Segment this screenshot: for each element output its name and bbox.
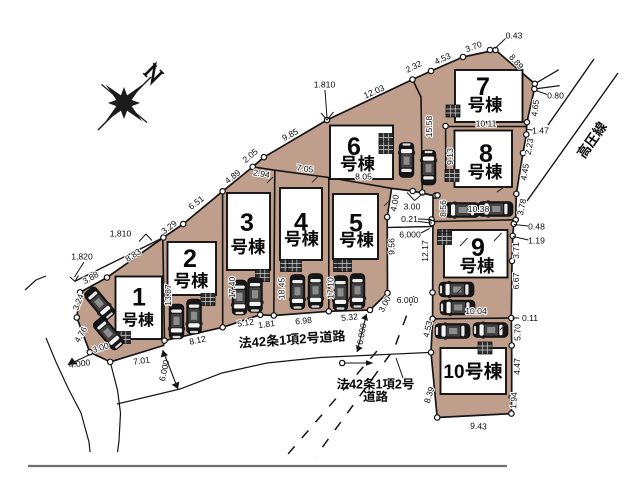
- svg-text:0.43: 0.43: [506, 31, 523, 41]
- svg-text:13.87: 13.87: [163, 284, 173, 306]
- svg-text:10: 10: [443, 362, 464, 383]
- svg-text:6.000: 6.000: [397, 295, 419, 305]
- svg-text:9.43: 9.43: [470, 421, 487, 432]
- svg-text:42: 42: [349, 378, 363, 392]
- svg-text:0.21: 0.21: [401, 214, 418, 224]
- svg-text:42: 42: [251, 334, 266, 350]
- svg-text:2: 2: [183, 245, 197, 273]
- svg-text:5.70: 5.70: [513, 324, 523, 341]
- svg-text:8.05: 8.05: [355, 172, 372, 182]
- svg-text:5.32: 5.32: [341, 311, 359, 323]
- svg-text:8.12: 8.12: [188, 333, 207, 346]
- svg-text:8.39: 8.39: [422, 385, 437, 404]
- svg-text:17.10: 17.10: [326, 277, 336, 299]
- svg-text:10.38: 10.38: [468, 204, 490, 214]
- svg-text:8.56: 8.56: [438, 200, 448, 217]
- svg-text:9.13: 9.13: [445, 148, 455, 165]
- svg-text:1,820: 1,820: [71, 252, 93, 262]
- svg-text:15.58: 15.58: [424, 116, 434, 138]
- svg-text:4.45: 4.45: [518, 163, 531, 181]
- svg-text:0.11: 0.11: [522, 313, 538, 323]
- svg-text:3: 3: [240, 209, 254, 237]
- svg-text:10.11: 10.11: [476, 119, 497, 129]
- svg-text:1.94: 1.94: [508, 392, 519, 409]
- svg-text:0.80: 0.80: [547, 91, 564, 101]
- svg-text:1.81: 1.81: [258, 318, 276, 330]
- svg-text:3.70: 3.70: [464, 39, 483, 54]
- svg-text:12.17: 12.17: [420, 240, 430, 262]
- svg-text:4.47: 4.47: [512, 358, 522, 375]
- svg-text:2.05: 2.05: [240, 146, 259, 165]
- svg-text:1.810: 1.810: [314, 80, 336, 90]
- svg-text:3.00: 3.00: [404, 202, 421, 212]
- svg-text:6.000: 6.000: [399, 230, 421, 240]
- svg-text:6.98: 6.98: [295, 315, 313, 327]
- svg-text:10.04: 10.04: [465, 306, 487, 316]
- svg-text:0.48: 0.48: [528, 222, 545, 232]
- svg-text:4.65: 4.65: [529, 99, 541, 117]
- svg-text:2.23: 2.23: [523, 137, 536, 155]
- svg-text:4.00: 4.00: [388, 194, 401, 212]
- svg-text:7.01: 7.01: [133, 354, 151, 366]
- svg-text:3.78: 3.78: [515, 198, 528, 217]
- svg-text:5.12: 5.12: [237, 316, 255, 328]
- svg-text:1: 1: [279, 332, 287, 347]
- svg-text:1,810: 1,810: [110, 229, 132, 239]
- svg-text:2: 2: [299, 331, 307, 346]
- svg-text:6.000: 6.000: [157, 359, 171, 382]
- svg-text:3.71: 3.71: [511, 242, 521, 259]
- svg-text:1: 1: [376, 378, 383, 392]
- svg-text:1: 1: [132, 284, 146, 312]
- svg-text:18.45: 18.45: [277, 278, 287, 300]
- svg-text:17.40: 17.40: [227, 277, 237, 299]
- svg-text:9.56: 9.56: [387, 238, 397, 255]
- svg-text:2.32: 2.32: [404, 58, 424, 75]
- svg-text:2: 2: [395, 378, 402, 392]
- svg-text:1.47: 1.47: [532, 126, 549, 136]
- svg-text:6.67: 6.67: [511, 272, 521, 289]
- svg-text:1.19: 1.19: [528, 236, 545, 246]
